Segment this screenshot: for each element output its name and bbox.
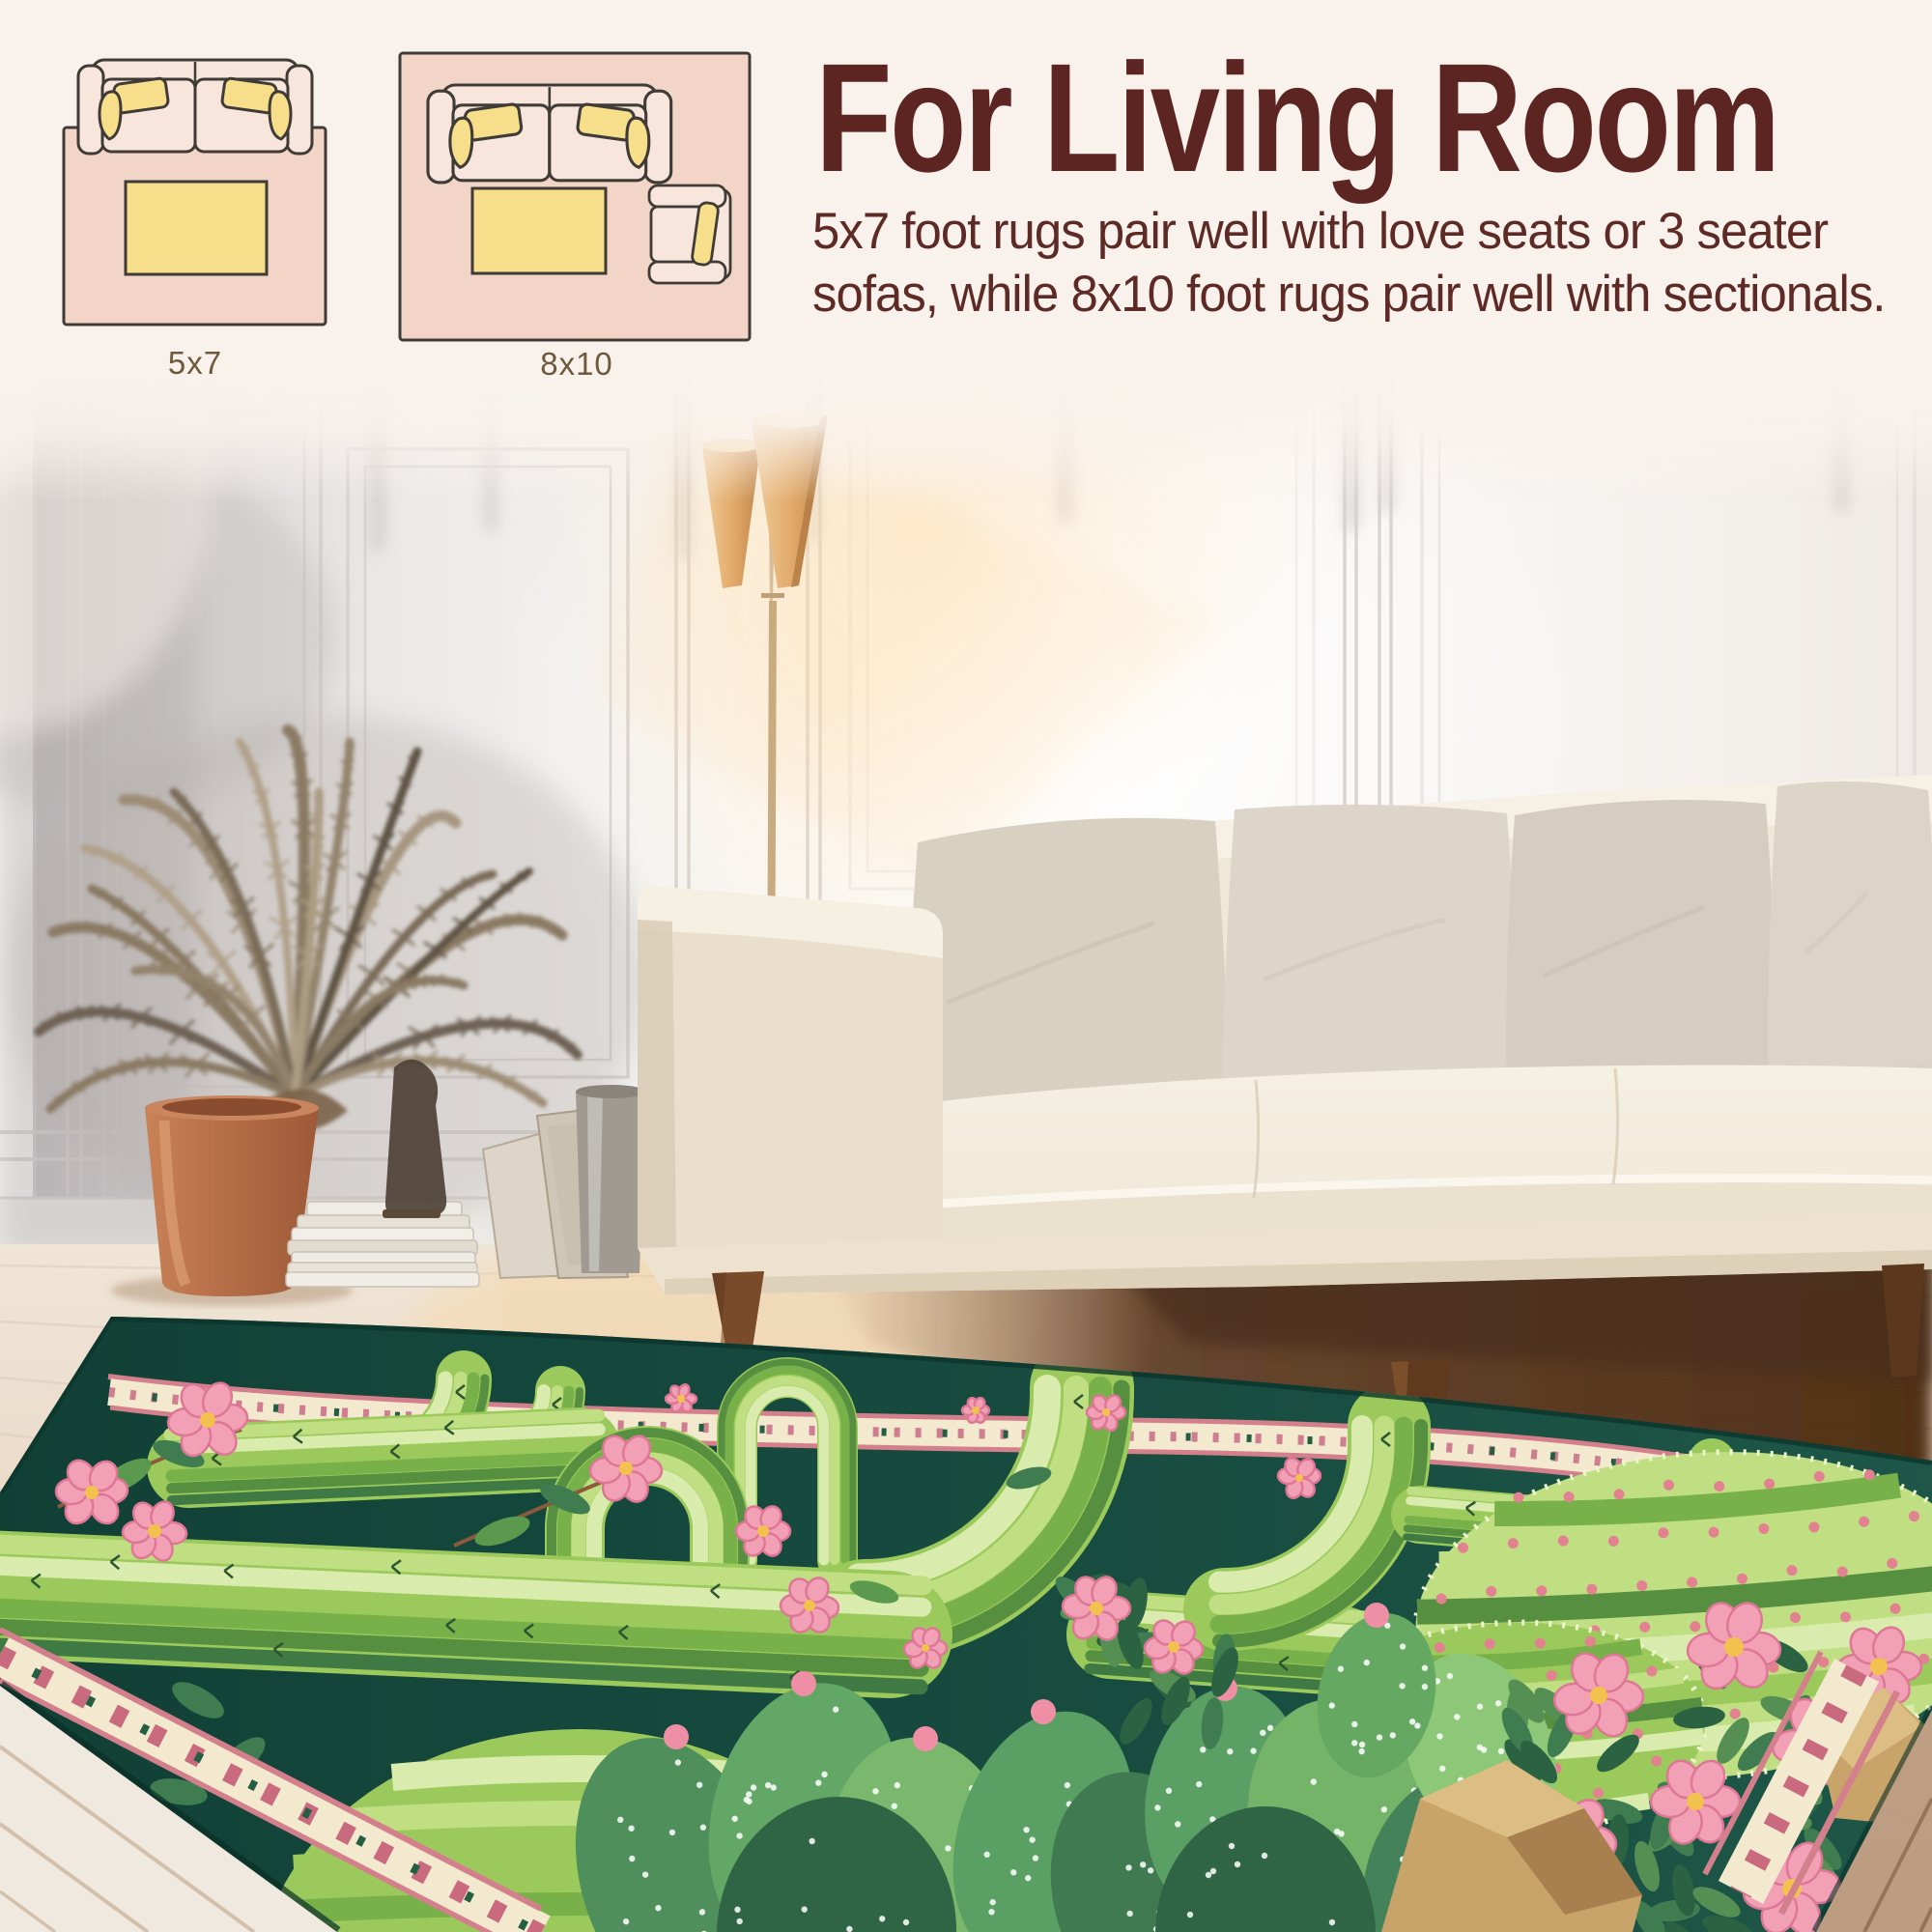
svg-text:8x10: 8x10 xyxy=(540,346,613,382)
svg-text:5x7: 5x7 xyxy=(168,345,222,381)
